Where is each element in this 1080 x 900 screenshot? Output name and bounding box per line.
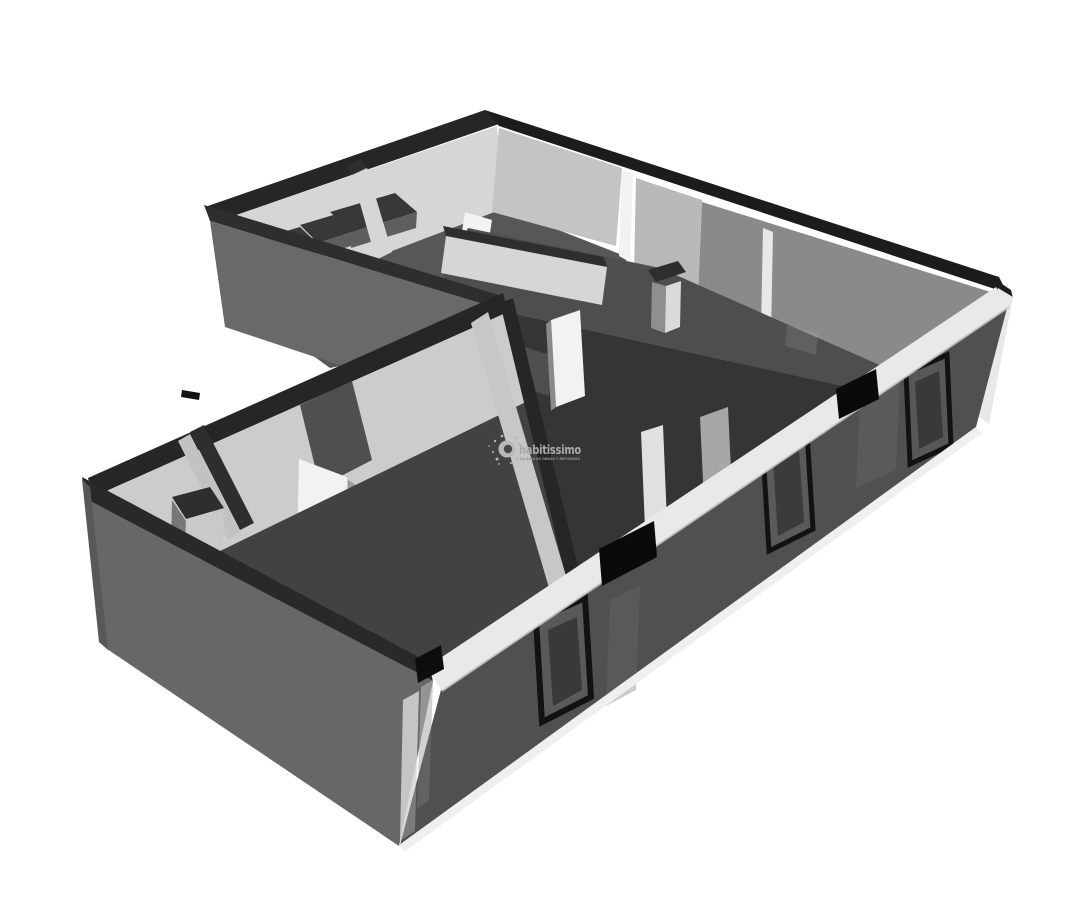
small-dark-fitting [181,390,200,400]
open-door-leaf [551,310,585,407]
watermark-brand-text: habitissimo [519,442,582,457]
door-jamb [619,170,633,262]
watermark-tagline-text: LA GUÍA DE OBRAS Y REFORMAS [520,456,580,461]
floor-plan-render: habitissimo LA GUÍA DE OBRAS Y REFORMAS [0,0,1080,900]
floor-plan-3d-svg: habitissimo LA GUÍA DE OBRAS Y REFORMAS [0,0,1080,900]
